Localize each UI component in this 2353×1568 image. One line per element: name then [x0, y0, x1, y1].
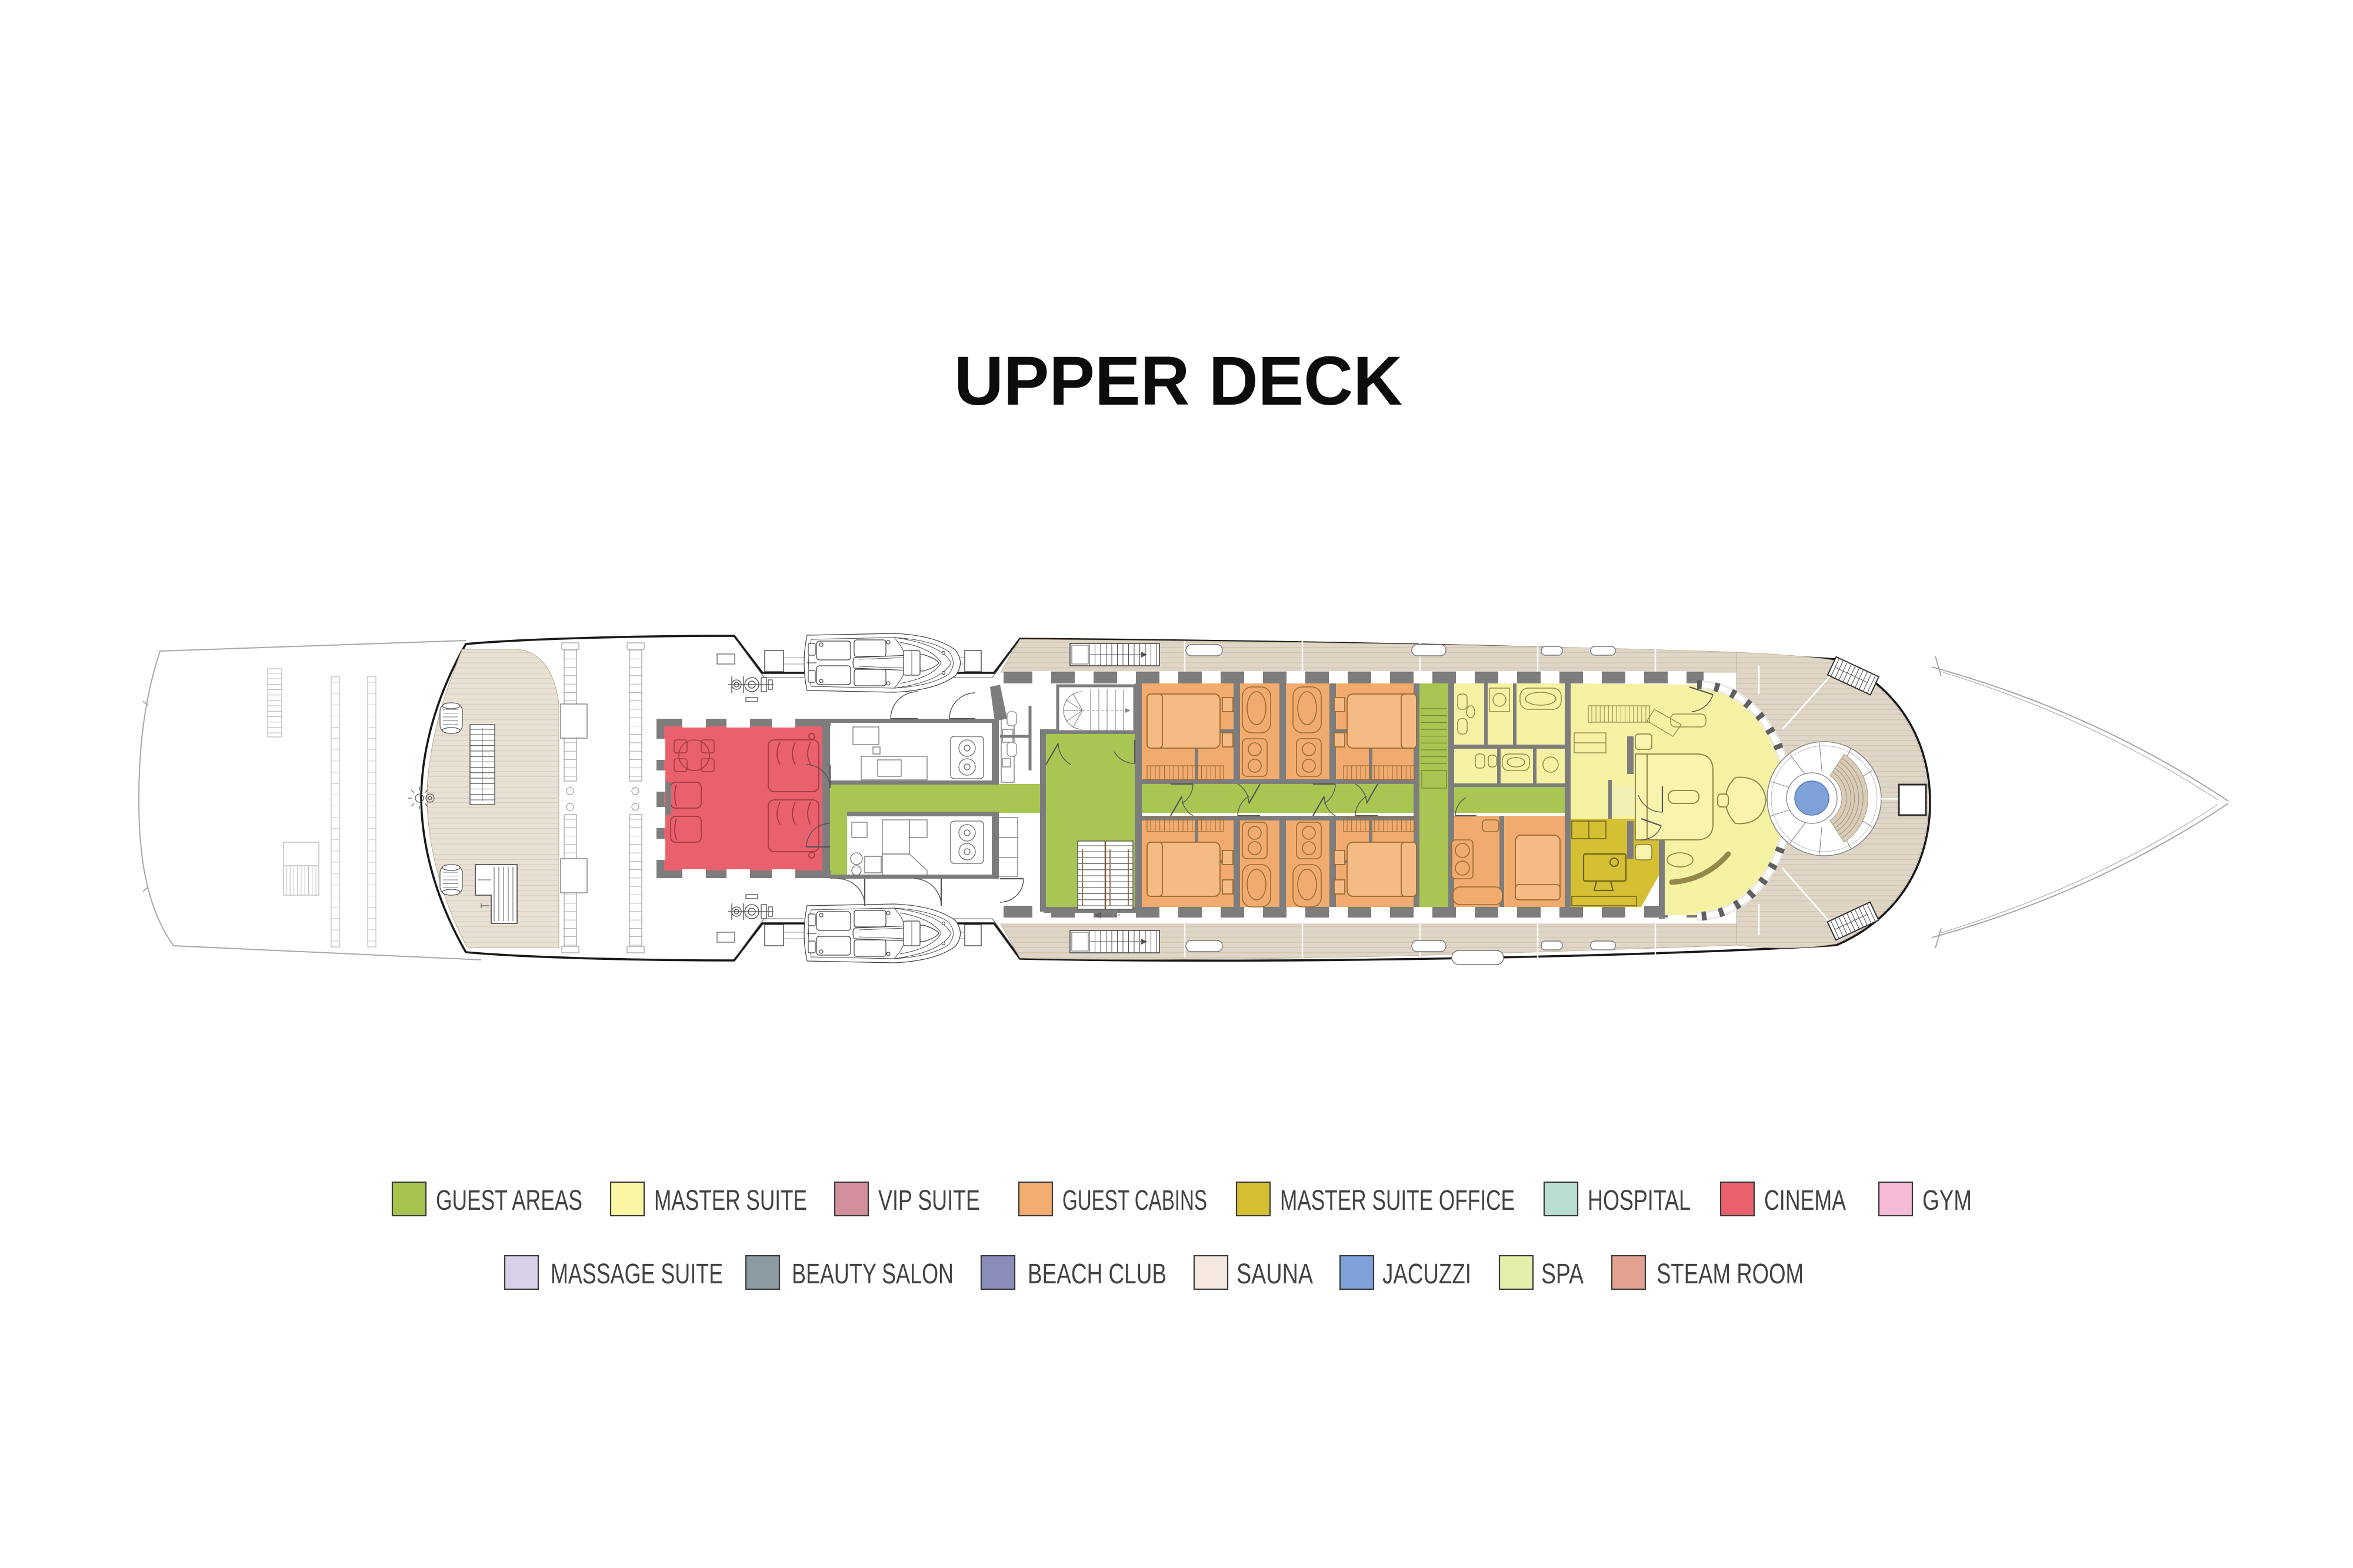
svg-text:GUEST AREAS: GUEST AREAS: [436, 1185, 582, 1216]
svg-text:JACUZZI: JACUZZI: [1382, 1259, 1471, 1290]
svg-text:MASSAGE SUITE: MASSAGE SUITE: [551, 1259, 723, 1290]
svg-text:GUEST CABINS: GUEST CABINS: [1062, 1185, 1207, 1216]
svg-text:GYM: GYM: [1922, 1185, 1972, 1216]
svg-text:BEAUTY SALON: BEAUTY SALON: [792, 1259, 954, 1290]
svg-text:SPA: SPA: [1541, 1259, 1584, 1290]
svg-text:SAUNA: SAUNA: [1237, 1259, 1313, 1290]
svg-text:STEAM ROOM: STEAM ROOM: [1657, 1259, 1804, 1290]
svg-text:VIP SUITE: VIP SUITE: [878, 1185, 980, 1216]
svg-text:MASTER SUITE OFFICE: MASTER SUITE OFFICE: [1280, 1185, 1515, 1216]
svg-text:HOSPITAL: HOSPITAL: [1588, 1185, 1691, 1216]
svg-text:UPPER DECK: UPPER DECK: [954, 342, 1402, 420]
svg-text:CINEMA: CINEMA: [1764, 1185, 1846, 1216]
svg-text:BEACH CLUB: BEACH CLUB: [1028, 1259, 1166, 1290]
svg-text:MASTER SUITE: MASTER SUITE: [654, 1185, 807, 1216]
